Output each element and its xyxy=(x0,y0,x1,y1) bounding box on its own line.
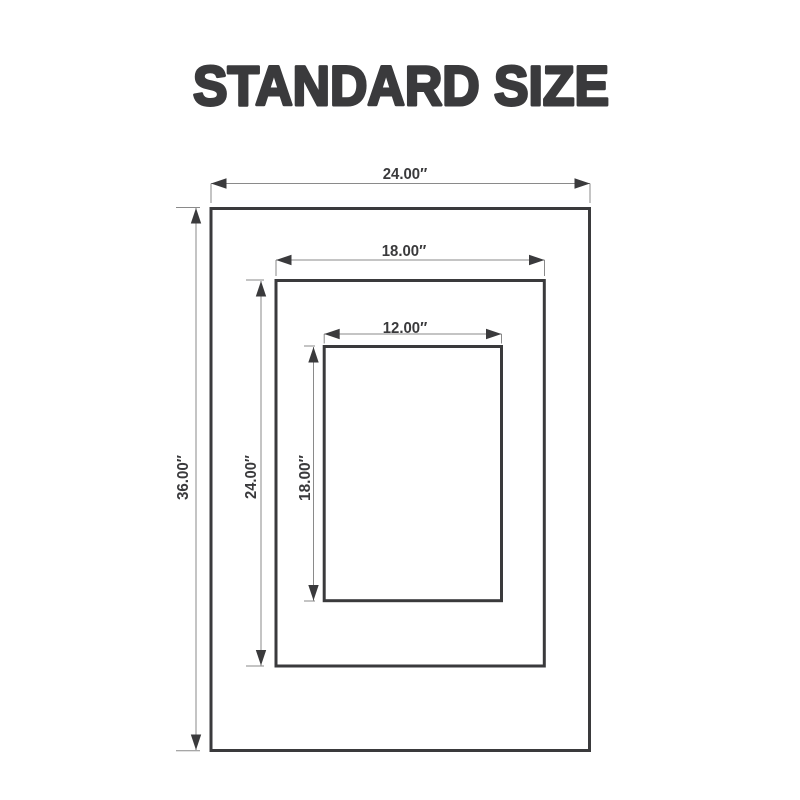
svg-text:18.00″: 18.00″ xyxy=(382,243,427,260)
svg-text:STANDARD SIZE: STANDARD SIZE xyxy=(193,54,609,117)
svg-text:18.00″: 18.00″ xyxy=(297,455,314,501)
svg-text:36.00″: 36.00″ xyxy=(175,455,192,500)
svg-text:24.00″: 24.00″ xyxy=(243,455,260,499)
svg-text:12.00″: 12.00″ xyxy=(383,320,428,337)
svg-text:24.00″: 24.00″ xyxy=(383,166,428,183)
